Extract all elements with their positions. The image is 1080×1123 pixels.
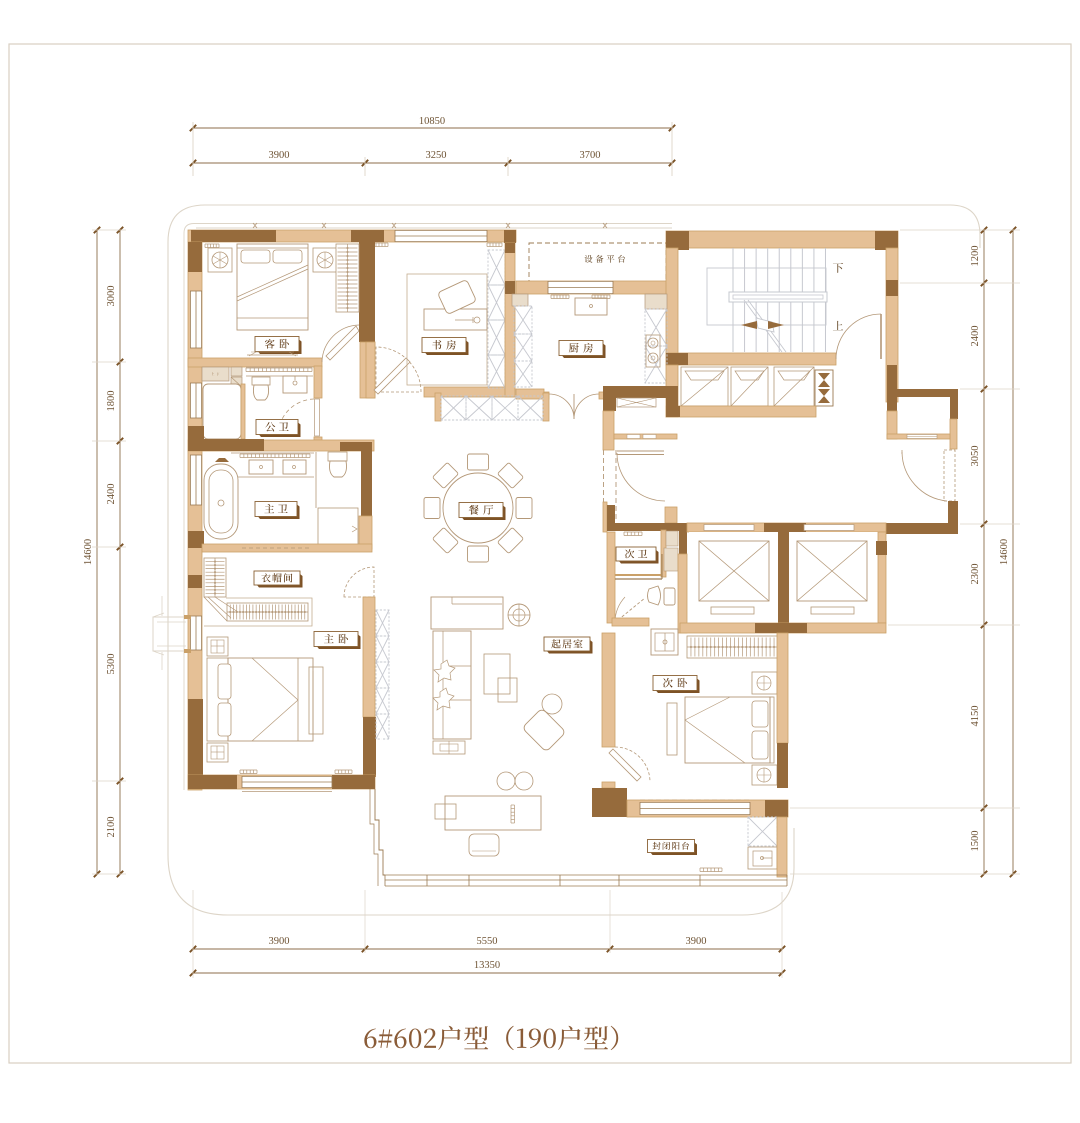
- svg-text:3050: 3050: [970, 446, 981, 467]
- svg-text:1500: 1500: [970, 831, 981, 852]
- svg-text:3700: 3700: [580, 150, 601, 161]
- svg-text:2300: 2300: [970, 564, 981, 585]
- svg-text:3000: 3000: [106, 286, 117, 307]
- svg-text:2400: 2400: [970, 326, 981, 347]
- svg-text:3900: 3900: [269, 150, 290, 161]
- svg-text:3250: 3250: [426, 150, 447, 161]
- svg-text:13350: 13350: [474, 960, 500, 971]
- svg-text:10850: 10850: [419, 116, 445, 127]
- svg-text:14600: 14600: [999, 539, 1010, 565]
- svg-text:5550: 5550: [477, 936, 498, 947]
- svg-text:3900: 3900: [269, 936, 290, 947]
- svg-text:3900: 3900: [686, 936, 707, 947]
- svg-text:1200: 1200: [970, 246, 981, 267]
- svg-text:5300: 5300: [106, 654, 117, 675]
- svg-text:2400: 2400: [106, 484, 117, 505]
- svg-text:1800: 1800: [106, 391, 117, 412]
- svg-text:14600: 14600: [83, 539, 94, 565]
- svg-text:2100: 2100: [106, 817, 117, 838]
- svg-text:4150: 4150: [970, 706, 981, 727]
